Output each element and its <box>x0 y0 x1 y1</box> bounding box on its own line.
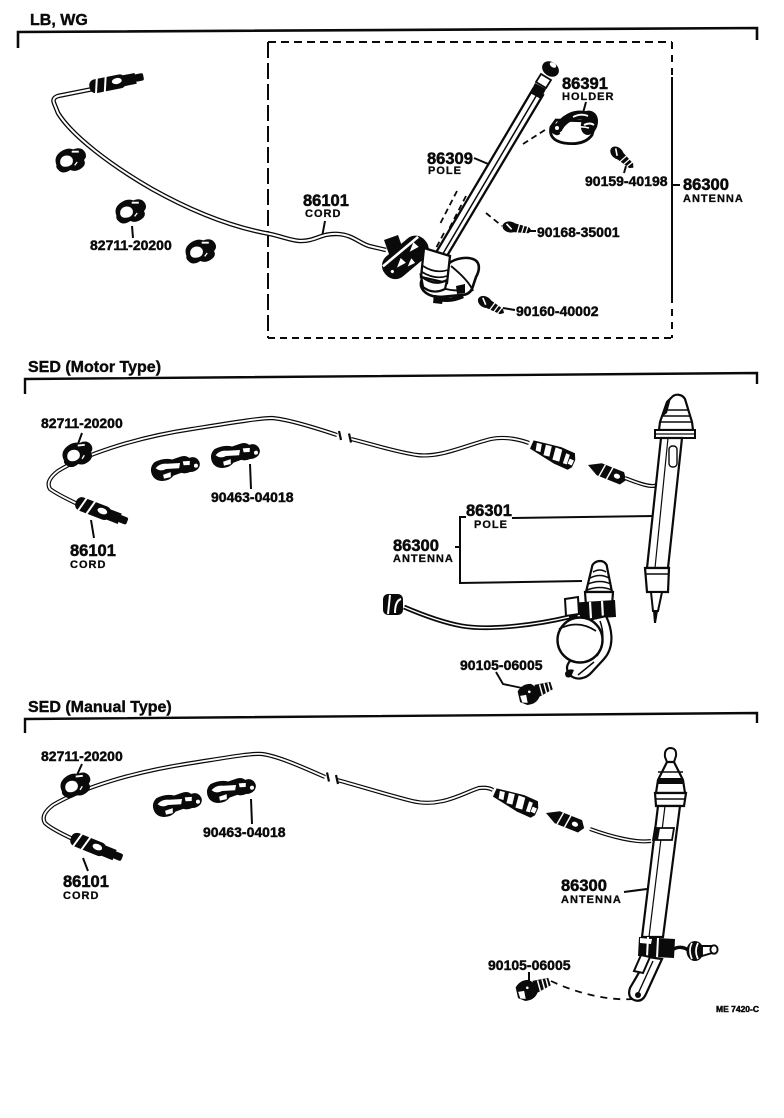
svg-text:90105-06005: 90105-06005 <box>460 657 543 673</box>
svg-text:ME 7420-C: ME 7420-C <box>716 1004 759 1014</box>
svg-text:82711-20200: 82711-20200 <box>41 415 123 431</box>
svg-text:86101: 86101 <box>70 542 116 560</box>
svg-text:CORD: CORD <box>305 208 341 220</box>
svg-text:ANTENNA: ANTENNA <box>683 193 744 205</box>
svg-text:CORD: CORD <box>70 559 106 571</box>
svg-text:90160-40002: 90160-40002 <box>516 303 599 319</box>
svg-text:CORD: CORD <box>63 890 99 902</box>
svg-text:HOLDER: HOLDER <box>562 91 614 103</box>
svg-text:90168-35001: 90168-35001 <box>537 224 620 240</box>
svg-text:90105-06005: 90105-06005 <box>488 957 571 973</box>
svg-text:90159-40198: 90159-40198 <box>585 173 668 189</box>
svg-text:ANTENNA: ANTENNA <box>393 553 454 565</box>
svg-text:86300: 86300 <box>561 877 607 895</box>
svg-text:POLE: POLE <box>474 519 508 531</box>
svg-text:86301: 86301 <box>466 502 512 520</box>
svg-text:LB, WG: LB, WG <box>30 12 88 29</box>
svg-text:86300: 86300 <box>683 176 729 194</box>
svg-text:82711-20200: 82711-20200 <box>90 237 172 253</box>
svg-text:90463-04018: 90463-04018 <box>211 489 294 505</box>
svg-text:SED (Motor Type): SED (Motor Type) <box>28 359 161 376</box>
svg-text:SED (Manual Type): SED (Manual Type) <box>28 699 172 716</box>
svg-text:82711-20200: 82711-20200 <box>41 748 123 764</box>
svg-text:POLE: POLE <box>428 165 462 177</box>
svg-text:90463-04018: 90463-04018 <box>203 824 286 840</box>
svg-text:ANTENNA: ANTENNA <box>561 894 622 906</box>
svg-text:86101: 86101 <box>63 873 109 891</box>
